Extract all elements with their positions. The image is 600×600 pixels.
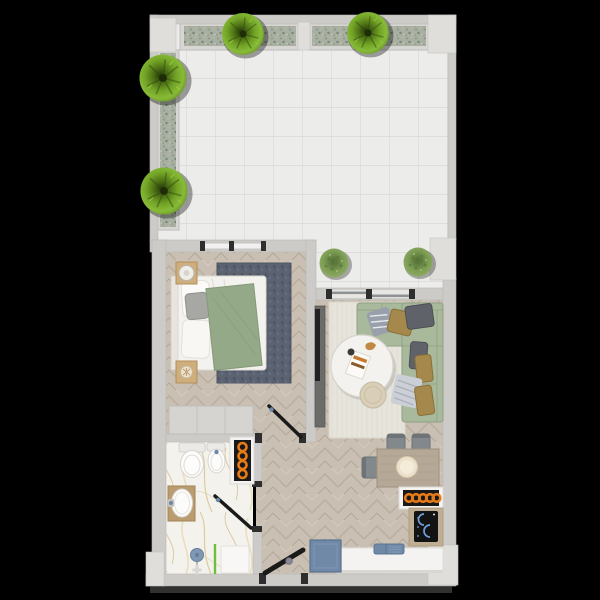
appliance-blue-box bbox=[310, 540, 341, 572]
floor-plan bbox=[0, 0, 600, 600]
ottoman bbox=[360, 382, 386, 408]
tv bbox=[315, 309, 320, 381]
bed bbox=[178, 276, 266, 370]
bidet bbox=[207, 443, 225, 473]
dining-chair-2 bbox=[412, 434, 430, 451]
wall-right bbox=[443, 278, 456, 584]
dining-table bbox=[377, 449, 439, 487]
planter-gap-block bbox=[298, 22, 310, 50]
bedroom-door-jamb-left bbox=[255, 433, 262, 443]
floor-plan-canvas bbox=[0, 0, 600, 600]
sofa-cushion-dark-1 bbox=[405, 303, 435, 330]
kitchen-sink bbox=[374, 544, 404, 554]
nightstand-bottom bbox=[176, 361, 197, 383]
cooktop-counter bbox=[409, 508, 443, 546]
bedroom-window-frame-left bbox=[200, 241, 205, 251]
entrance-jamb-right bbox=[301, 573, 308, 584]
shower-tray bbox=[221, 546, 249, 573]
bathroom-door-jamb-bottom bbox=[252, 526, 262, 532]
bedroom-door-handle bbox=[269, 407, 273, 411]
bidet-faucet bbox=[214, 450, 218, 454]
toilet bbox=[179, 443, 205, 478]
bedroom-window-frame-right bbox=[261, 241, 266, 251]
wardrobe bbox=[169, 406, 253, 434]
wall-left bbox=[152, 240, 166, 586]
bathroom-door-handle bbox=[216, 498, 220, 502]
sliding-door-frame-mid bbox=[366, 289, 372, 299]
sliding-door-frame-left bbox=[326, 289, 332, 299]
bed-pillow-bottom bbox=[181, 319, 211, 358]
sliding-door-glass-left bbox=[330, 292, 370, 295]
sliding-door-frame-right bbox=[409, 289, 415, 299]
media-sideboard bbox=[315, 306, 325, 427]
living-room bbox=[315, 302, 443, 438]
dining-chair-3 bbox=[362, 457, 379, 478]
nightstand-top bbox=[176, 262, 197, 284]
bathroom-radiator bbox=[230, 437, 254, 484]
bed-headboard bbox=[171, 276, 178, 370]
sliding-door-glass-right bbox=[371, 295, 413, 298]
kitchen-counter bbox=[337, 544, 443, 573]
corner-block-bottom-left bbox=[146, 552, 164, 586]
bed-cushion-gray bbox=[185, 292, 210, 320]
wall-divider-bedroom-living bbox=[306, 240, 316, 442]
coffee-table-bowl bbox=[348, 349, 355, 356]
corner-block-top-right bbox=[428, 15, 456, 53]
kitchen-radiator bbox=[399, 487, 443, 509]
entrance-door-handle bbox=[286, 558, 292, 564]
bed-throw-green bbox=[206, 284, 262, 371]
sofa-cushion-mustard-3 bbox=[414, 385, 435, 416]
plan-bottom-shadow bbox=[150, 586, 452, 593]
vanity-basin bbox=[168, 486, 195, 521]
dining-chair-1 bbox=[387, 434, 405, 451]
corner-block-top-left bbox=[150, 18, 176, 52]
bedroom-window-frame-mid bbox=[229, 241, 234, 251]
wall-bathroom-right-lower bbox=[253, 531, 262, 575]
terrace-floor bbox=[158, 22, 448, 240]
